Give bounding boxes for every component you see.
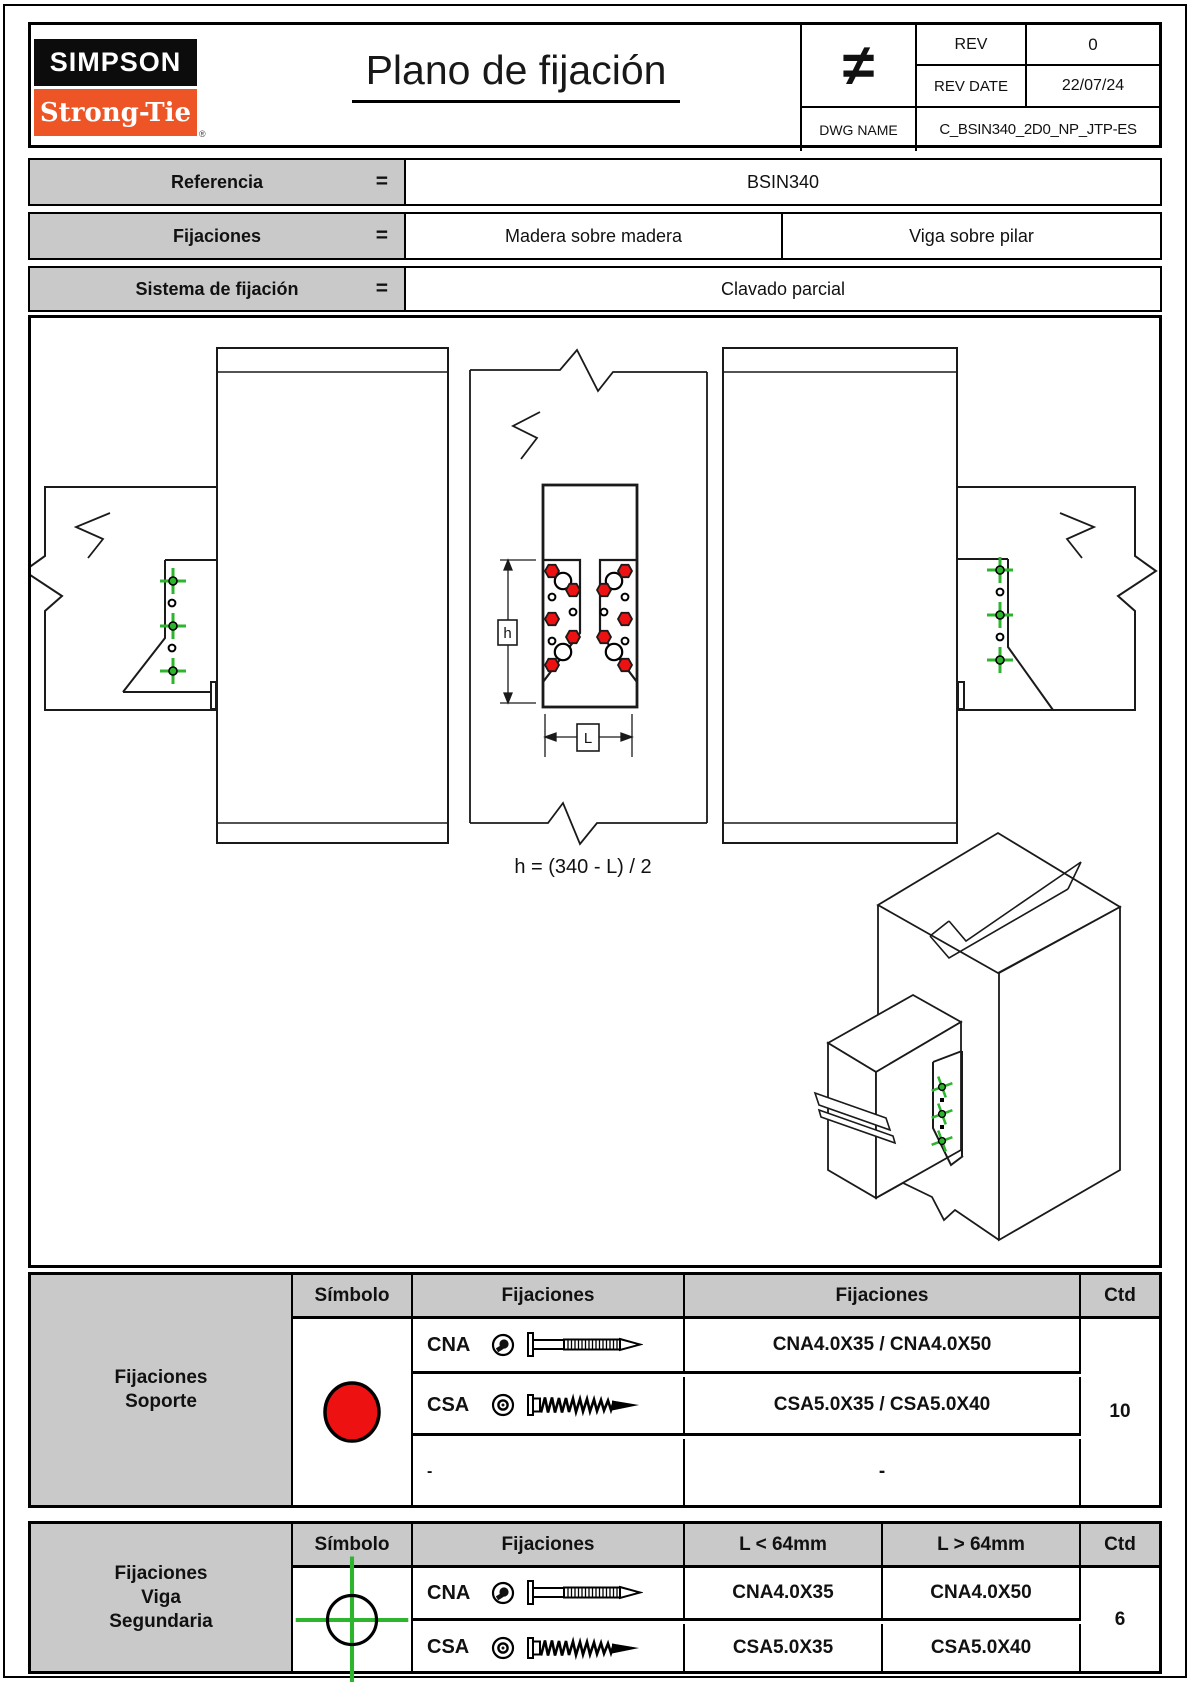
fixing-code: CSA bbox=[427, 1636, 479, 1659]
isometric-view bbox=[815, 833, 1120, 1240]
cna-head-icon bbox=[490, 1580, 516, 1606]
equals-sign: = bbox=[376, 170, 388, 194]
secondary-table-label: Fijaciones Viga Segundaria bbox=[31, 1524, 293, 1671]
header-band: SIMPSON Strong-Tie ® Plano de fijación ≠… bbox=[28, 22, 1162, 148]
secondary-qty: 6 bbox=[1081, 1568, 1159, 1671]
not-equal-icon: ≠ bbox=[800, 25, 915, 108]
fixing-code: CSA bbox=[427, 1394, 479, 1417]
support-symbol-red-circle bbox=[317, 1377, 387, 1447]
support-symbol-cell bbox=[293, 1319, 413, 1505]
col-header-fijaciones-icons: Fijaciones bbox=[413, 1275, 685, 1319]
fixing-value-gt: CSA5.0X40 bbox=[883, 1624, 1081, 1671]
col-header-fijaciones-names: Fijaciones bbox=[685, 1275, 1081, 1319]
fixing-value-gt: CNA4.0X50 bbox=[883, 1568, 1081, 1621]
info-row-referencia: Referencia = BSIN340 bbox=[28, 158, 1162, 206]
fixing-value-lt: CNA4.0X35 bbox=[685, 1568, 883, 1621]
info-value: Madera sobre madera bbox=[406, 214, 783, 258]
fixing-row-cna: CNA bbox=[413, 1319, 685, 1374]
equals-sign: = bbox=[376, 224, 388, 248]
col-header-ctd: Ctd bbox=[1081, 1275, 1159, 1319]
front-view: h L h = (340 - L) / 2 bbox=[470, 350, 707, 878]
rev-label: REV bbox=[915, 25, 1025, 66]
csa-head-icon bbox=[490, 1392, 516, 1418]
support-fixings-table: Fijaciones Soporte Símbolo Fijaciones Fi… bbox=[28, 1272, 1162, 1508]
dwg-name-label: DWG NAME bbox=[800, 108, 915, 151]
col-header-l-lt-64: L < 64mm bbox=[685, 1524, 883, 1568]
right-side-view bbox=[723, 348, 1156, 843]
fixing-row-csa: CSA bbox=[413, 1624, 685, 1671]
simpson-logo-orange: Strong-Tie bbox=[34, 89, 197, 136]
cna-nail-icon bbox=[527, 1331, 643, 1359]
fixing-value: CNA4.0X35 / CNA4.0X50 bbox=[685, 1319, 1081, 1374]
dimension-h: h bbox=[498, 560, 536, 703]
secondary-symbol-crosshair bbox=[293, 1547, 411, 1682]
cna-head-icon bbox=[490, 1332, 516, 1358]
info-row-fijaciones: Fijaciones = Madera sobre madera Viga so… bbox=[28, 212, 1162, 260]
csa-screw-icon bbox=[527, 1391, 643, 1419]
registered-mark: ® bbox=[199, 129, 206, 139]
drawing-area: h L h = (340 - L) / 2 bbox=[28, 315, 1162, 1268]
info-value: Clavado parcial bbox=[406, 268, 1160, 310]
support-table-label: Fijaciones Soporte bbox=[31, 1275, 293, 1505]
csa-head-icon bbox=[490, 1635, 516, 1661]
simpson-logo-black: SIMPSON bbox=[34, 39, 197, 86]
secondary-beam-fixings-table: Fijaciones Viga Segundaria Símbolo Fijac… bbox=[28, 1521, 1162, 1674]
col-header-l-gt-64: L > 64mm bbox=[883, 1524, 1081, 1568]
fixing-row-csa: CSA bbox=[413, 1377, 685, 1436]
col-header-simbolo: Símbolo bbox=[293, 1275, 413, 1319]
info-value: BSIN340 bbox=[406, 160, 1160, 204]
logo-simpson-text: SIMPSON bbox=[50, 47, 182, 78]
info-label: Sistema de fijación = bbox=[30, 268, 406, 310]
fixing-value: - bbox=[685, 1439, 1081, 1505]
col-header-ctd: Ctd bbox=[1081, 1524, 1159, 1568]
info-label: Fijaciones = bbox=[30, 214, 406, 258]
rev-date-label: REV DATE bbox=[915, 66, 1025, 108]
fixing-code: CNA bbox=[427, 1334, 479, 1357]
fixing-value-lt: CSA5.0X35 bbox=[685, 1624, 883, 1671]
info-row-sistema: Sistema de fijación = Clavado parcial bbox=[28, 266, 1162, 312]
col-header-fijaciones: Fijaciones bbox=[413, 1524, 685, 1568]
rev-date-value: 22/07/24 bbox=[1025, 66, 1159, 108]
secondary-symbol-cell bbox=[293, 1568, 413, 1671]
fixing-code: - bbox=[427, 1463, 479, 1481]
fixing-row-cna: CNA bbox=[413, 1568, 685, 1621]
page-title: Plano de fijación bbox=[281, 47, 751, 103]
fixing-row-empty: - bbox=[413, 1439, 685, 1505]
cna-nail-icon bbox=[527, 1579, 643, 1607]
fixing-code: CNA bbox=[427, 1582, 479, 1605]
dwg-name-value: C_BSIN340_2D0_NP_JTP-ES bbox=[915, 108, 1159, 151]
info-label: Referencia = bbox=[30, 160, 406, 204]
fixing-value: CSA5.0X35 / CSA5.0X40 bbox=[685, 1377, 1081, 1436]
height-formula: h = (340 - L) / 2 bbox=[514, 856, 651, 878]
technical-drawing: h L h = (340 - L) / 2 bbox=[31, 318, 1159, 1265]
drawing-sheet: SIMPSON Strong-Tie ® Plano de fijación ≠… bbox=[0, 0, 1190, 1682]
equals-sign: = bbox=[376, 277, 388, 301]
info-value: Viga sobre pilar bbox=[783, 214, 1160, 258]
dim-h-label: h bbox=[503, 625, 511, 642]
rev-value: 0 bbox=[1025, 25, 1159, 66]
support-qty: 10 bbox=[1081, 1319, 1159, 1505]
dimension-l: L bbox=[545, 714, 632, 757]
csa-screw-icon bbox=[527, 1634, 643, 1662]
left-side-view bbox=[31, 348, 448, 843]
dim-l-label: L bbox=[584, 730, 592, 747]
logo-strongtie-text: Strong-Tie bbox=[40, 98, 191, 128]
